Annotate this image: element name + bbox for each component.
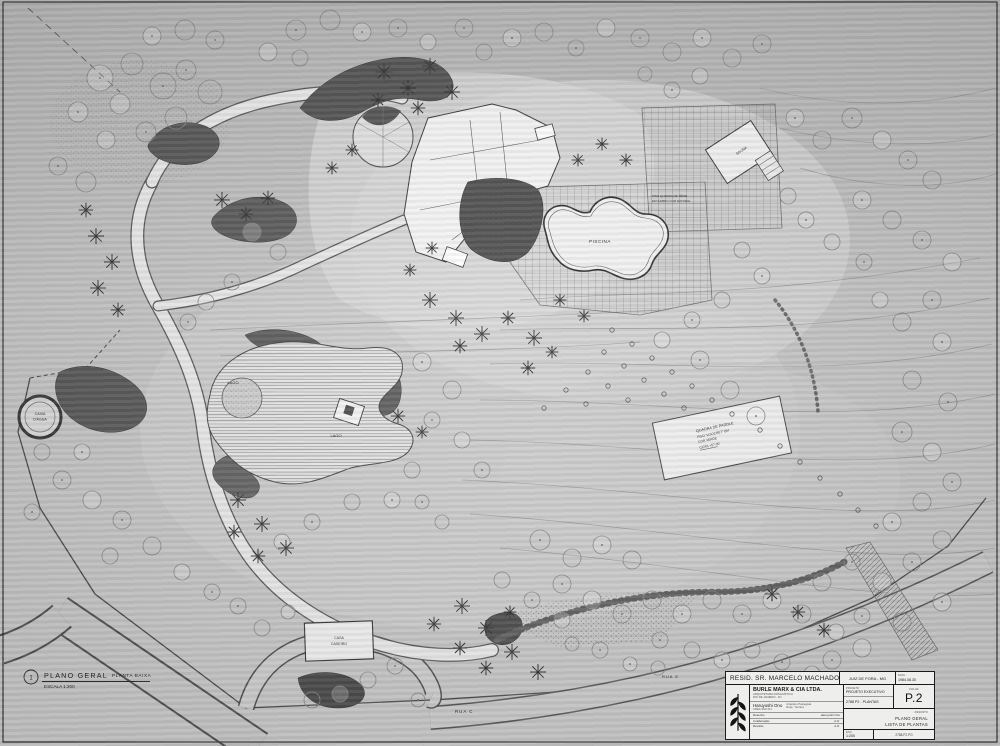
conifer-symbol (478, 620, 494, 636)
conifer-symbol (422, 58, 438, 74)
tree-center-dot (761, 43, 763, 45)
tree-center-dot (907, 159, 909, 161)
tree-center-dot (231, 281, 233, 283)
tree-center-dot (941, 601, 943, 603)
conifer-symbol (404, 264, 417, 277)
drawing-title-text: PLANO GERAL (44, 671, 108, 680)
conifer-symbol (371, 93, 385, 107)
tree-center-dot (481, 469, 483, 471)
tree-center-dot (391, 499, 393, 501)
conifer-symbol (453, 339, 467, 353)
tree-center-dot (61, 479, 63, 481)
tree-symbol (102, 548, 118, 564)
tree-symbol (174, 564, 190, 580)
conifer-symbol (578, 310, 591, 323)
conifer-symbol (474, 326, 490, 342)
tree-symbol (872, 292, 888, 308)
tree-center-dot (947, 401, 949, 403)
tree-center-dot (931, 299, 933, 301)
tree-center-dot (911, 561, 913, 563)
conifer-symbol (104, 254, 120, 270)
tree-center-dot (421, 361, 423, 363)
tree-center-dot (851, 561, 853, 563)
drawing-subtitle: PLANTA BAIXA (112, 673, 152, 678)
tree-center-dot (601, 544, 603, 546)
tree-center-dot (861, 615, 863, 617)
street-c-label: RUA C (455, 709, 473, 714)
tree-center-dot (741, 613, 743, 615)
tree-symbol (933, 531, 951, 549)
conifer-symbol (791, 605, 805, 619)
scanned-plan-sheet: PISCINA LAGO LAGO CAIXA D'ÁGUA QUADRA DE… (0, 0, 1000, 746)
tree-center-dot (781, 661, 783, 663)
content-line-1: PLANO GERAL (895, 716, 928, 721)
tree-center-dot (639, 37, 641, 39)
tree-symbol (923, 171, 941, 189)
conifer-symbol (620, 154, 633, 167)
tree-symbol (723, 49, 741, 67)
tree-center-dot (901, 431, 903, 433)
tree-symbol (76, 172, 96, 192)
tree-center-dot (121, 519, 123, 521)
tree-center-dot (463, 27, 465, 29)
drawing-number: 1 (29, 676, 33, 682)
firm-address-2: RIO DE JANEIRO - RJ (750, 696, 843, 699)
tree-center-dot (214, 39, 216, 41)
conifer-symbol (230, 492, 246, 508)
sheet-number: P.2 (905, 691, 923, 705)
conifer-symbol (504, 606, 517, 619)
tree-center-dot (755, 415, 757, 417)
tree-center-dot (57, 165, 59, 167)
conifer-symbol (278, 540, 294, 556)
conifer-symbol (214, 192, 230, 208)
conifer-symbol (416, 426, 429, 439)
site-plan-drawing: PISCINA LAGO LAGO CAIXA D'ÁGUA QUADRA DE… (0, 0, 1000, 746)
tree-center-dot (421, 501, 423, 503)
caretaker-label-1: CASA (334, 636, 344, 640)
tree-symbol (638, 67, 652, 81)
tennis-note-1: PISO QUADRA DE TÊNIS (652, 193, 687, 198)
tree-center-dot (599, 649, 601, 651)
tree-center-dot (561, 583, 563, 585)
conifer-symbol (90, 280, 106, 296)
tree-symbol (893, 313, 911, 331)
tree-center-dot (417, 699, 419, 701)
conifer-symbol (596, 138, 609, 151)
tree-symbol (654, 332, 670, 348)
tree-symbol (873, 573, 891, 591)
conifer-symbol (504, 644, 520, 660)
conifer-symbol (526, 330, 542, 346)
tree-center-dot (921, 239, 923, 241)
tree-center-dot (339, 693, 341, 695)
tree-center-dot (237, 605, 239, 607)
tree-center-dot (721, 659, 723, 661)
conifer-symbol (817, 623, 831, 637)
conifer-symbol (422, 292, 438, 308)
tree-symbol (684, 642, 700, 658)
tree-center-dot (831, 659, 833, 661)
caretaker-house (304, 621, 373, 661)
tree-center-dot (31, 511, 33, 513)
conifer-symbol (501, 311, 515, 325)
water-tank-label-2: D'ÁGUA (33, 418, 47, 422)
tree-center-dot (81, 451, 83, 453)
round-terrace (353, 106, 413, 167)
tree-center-dot (699, 359, 701, 361)
conifer-symbol (479, 661, 493, 675)
conifer-symbol (453, 641, 467, 655)
conifer-symbol (554, 294, 567, 307)
tree-symbol (535, 23, 553, 41)
tree-center-dot (431, 419, 433, 421)
tree-symbol (583, 591, 601, 609)
caretaker-label-2: CASEIRO (331, 642, 347, 646)
conifer-symbol (375, 63, 393, 81)
tree-center-dot (701, 37, 703, 39)
conifer-symbol (326, 162, 339, 175)
tree-symbol (663, 43, 681, 61)
tree-symbol (873, 131, 891, 149)
tree-center-dot (861, 199, 863, 201)
conifer-symbol (454, 598, 470, 614)
conifer-symbol (521, 361, 535, 375)
tree-center-dot (145, 131, 147, 133)
conifer-symbol (765, 587, 779, 601)
tree-center-dot (629, 663, 631, 665)
tree-center-dot (681, 613, 683, 615)
tree-center-dot (151, 35, 153, 37)
title-block: RESID. SR. MARCELO MACHADO JUIZ DE FORA … (725, 671, 935, 740)
conifer-symbol (88, 228, 104, 244)
row3-value: A.O. (834, 724, 840, 729)
tree-center-dot (575, 47, 577, 49)
conifer-symbol (400, 80, 416, 96)
tree-center-dot (187, 321, 189, 323)
tree-symbol (476, 44, 492, 60)
bromeliad-logo-icon (729, 687, 747, 737)
tennis-note-2: EM SAIBRO COR NATURAL (652, 199, 691, 203)
tree-center-dot (659, 639, 661, 641)
tree-symbol (320, 10, 340, 30)
conifer-symbol (251, 549, 265, 563)
tree-symbol (259, 43, 277, 61)
tree-symbol (813, 131, 831, 149)
tree-center-dot (941, 341, 943, 343)
tree-center-dot (99, 77, 101, 79)
tree-center-dot (805, 219, 807, 221)
pool-label: PISCINA (589, 239, 611, 244)
tree-center-dot (891, 521, 893, 523)
tree-center-dot (162, 85, 164, 87)
bottom-scale-value: 1:200 (846, 734, 871, 738)
conifer-symbol (227, 525, 241, 539)
tree-center-dot (185, 69, 187, 71)
conifer-symbol (346, 144, 359, 157)
tree-symbol (97, 131, 115, 149)
tree-symbol (254, 620, 270, 636)
lake-label-2: LAGO (330, 433, 341, 438)
conifer-symbol (427, 617, 441, 631)
drawing-scale: ESCALA 1:200 (44, 684, 75, 689)
tree-symbol (270, 244, 286, 260)
lake-label: LAGO (227, 380, 238, 385)
conifer-symbol (448, 310, 464, 326)
tree-symbol (943, 253, 961, 271)
job-number: 2788 P2 - PLANTAS (846, 700, 891, 704)
tree-center-dot (295, 29, 297, 31)
conifer-symbol (572, 154, 585, 167)
tree-symbol (597, 19, 615, 37)
tree-center-dot (77, 111, 79, 113)
tree-symbol (903, 371, 921, 389)
tree-symbol (454, 432, 470, 448)
conifer-symbol (530, 664, 546, 680)
project-location: JUIZ DE FORA - MG (840, 672, 896, 684)
conifer-symbol (391, 409, 405, 423)
conifer-symbol (111, 303, 125, 317)
tree-symbol (923, 443, 941, 461)
tree-center-dot (691, 319, 693, 321)
architect-title-2: Resp. Técnico (786, 706, 811, 709)
conifer-symbol (261, 191, 275, 205)
tree-symbol (420, 34, 436, 50)
content-line-2: LISTA DE PLANTAS (885, 722, 928, 727)
street-e-label: RUA E (662, 674, 679, 679)
row3-label: Revisão (753, 724, 763, 729)
architect-reg: CREA 30-D RJ (753, 708, 782, 711)
tree-symbol (83, 491, 101, 509)
tree-symbol (692, 68, 708, 84)
tree-center-dot (621, 613, 623, 615)
conifer-symbol (426, 242, 439, 255)
drawing-code: 2788.P2.PG (874, 730, 934, 739)
tree-center-dot (794, 117, 796, 119)
date-value: 1984.08.30 (898, 678, 932, 682)
tree-center-dot (394, 665, 396, 667)
tree-center-dot (397, 27, 399, 29)
tree-center-dot (311, 521, 313, 523)
water-tank-label-1: CAIXA (35, 412, 46, 416)
firm-logo (726, 685, 750, 739)
tree-symbol (913, 493, 931, 511)
tree-symbol (853, 639, 871, 657)
tree-symbol (883, 211, 901, 229)
tree-symbol (143, 537, 161, 555)
tree-symbol (292, 50, 308, 66)
conifer-symbol (411, 101, 425, 115)
tree-center-dot (671, 89, 673, 91)
tree-symbol (554, 612, 570, 628)
conifer-symbol (546, 346, 559, 359)
tree-symbol (828, 624, 844, 640)
conifer-symbol (239, 207, 253, 221)
tree-symbol (110, 94, 130, 114)
tree-center-dot (539, 539, 541, 541)
tree-center-dot (531, 599, 533, 601)
tree-center-dot (951, 481, 953, 483)
phase-value: PROJETO EXECUTIVO (846, 690, 891, 694)
conifer-symbol (444, 84, 460, 100)
tree-center-dot (211, 591, 213, 593)
tree-center-dot (511, 37, 513, 39)
tree-symbol (34, 444, 50, 460)
content-label: ASSUNTO (915, 711, 928, 714)
tree-symbol (175, 20, 195, 40)
tree-symbol (360, 672, 376, 688)
tree-center-dot (851, 117, 853, 119)
conifer-symbol (254, 516, 270, 532)
tree-symbol (198, 294, 214, 310)
tree-center-dot (361, 31, 363, 33)
project-title: RESID. SR. MARCELO MACHADO (726, 672, 840, 684)
tree-symbol (281, 605, 295, 619)
tree-center-dot (863, 261, 865, 263)
tree-center-dot (761, 275, 763, 277)
conifer-symbol (79, 203, 93, 217)
tree-center-dot (251, 231, 253, 233)
